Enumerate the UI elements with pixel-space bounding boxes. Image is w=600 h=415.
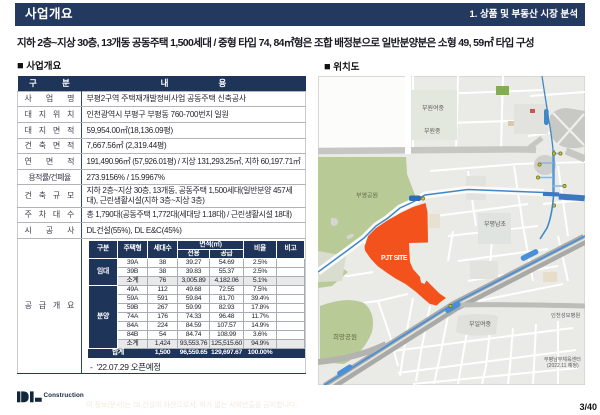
svg-text:PJT SITE: PJT SITE — [381, 255, 408, 262]
svg-text:부원여중: 부원여중 — [422, 104, 445, 112]
svg-text:Construction: Construction — [44, 392, 84, 399]
svg-text:부일여중: 부일여중 — [469, 320, 492, 328]
svg-text:(2022.11 예정): (2022.11 예정) — [547, 362, 579, 369]
svg-text:희망공원: 희망공원 — [333, 332, 357, 341]
svg-text:부평남부체육센터: 부평남부체육센터 — [544, 356, 581, 363]
svg-text:부원중: 부원중 — [424, 127, 441, 135]
svg-text:부영공원: 부영공원 — [356, 192, 378, 200]
svg-text:인천성모병원: 인천성모병원 — [551, 311, 580, 319]
svg-text:부평남초: 부평남초 — [484, 220, 507, 228]
